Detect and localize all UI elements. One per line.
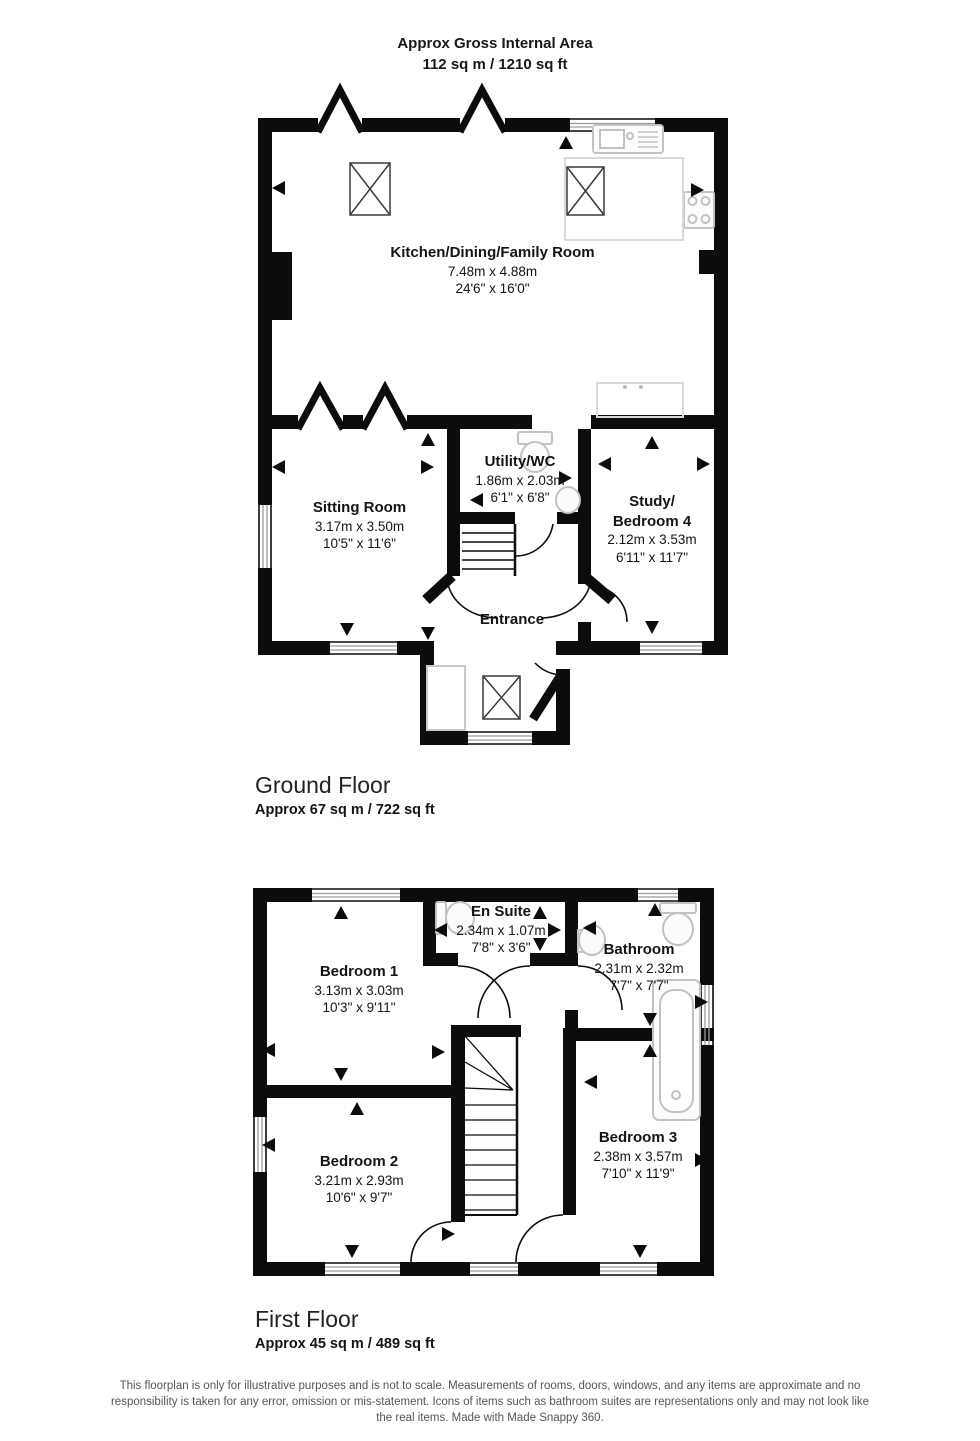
room-dim-metric: 3.17m x 3.50m [277,518,442,536]
stairs-icon [465,1032,517,1215]
stairs-icon [462,524,515,576]
room-dim-metric: 2.38m x 3.57m [568,1148,708,1166]
ground-floor-plan [258,90,728,745]
porch-mat [427,666,465,730]
ground-walls [258,118,728,745]
room-dim-imperial: 6'1" x 6'8" [452,489,588,507]
room-name: Bedroom 4 [582,512,722,532]
ground-floor-area: Approx 67 sq m / 722 sq ft [255,802,435,818]
ground-floor-heading: Ground Floor [255,772,391,799]
room-name: Bedroom 1 [279,962,439,982]
sitting-room-label: Sitting Room 3.17m x 3.50m 10'5" x 11'6" [277,498,442,553]
room-dim-metric: 2.34m x 1.07m [436,922,566,940]
room-dim-metric: 7.48m x 4.88m [355,263,630,281]
room-name: Utility/WC [452,452,588,472]
bedroom2-label: Bedroom 2 3.21m x 2.93m 10'6" x 9'7" [279,1152,439,1207]
title-line1: Approx Gross Internal Area [255,33,735,54]
ensuite-label: En Suite 2.34m x 1.07m 7'8" x 3'6" [436,902,566,957]
room-name: Bedroom 3 [568,1128,708,1148]
entrance-label: Entrance [452,610,572,630]
room-dim-imperial: 24'6" x 16'0" [355,280,630,298]
floorplan-page: Approx Gross Internal Area 112 sq m / 12… [0,0,980,1441]
disclaimer-text: This floorplan is only for illustrative … [110,1378,870,1426]
hob-icon [684,192,714,228]
floorplan-graphic [0,0,980,1441]
bathroom-label: Bathroom 2.31m x 2.32m 7'7" x 7'7" [569,940,709,995]
first-floor-area: Approx 45 sq m / 489 sq ft [255,1336,435,1352]
room-dim-metric: 3.21m x 2.93m [279,1172,439,1190]
bedroom1-label: Bedroom 1 3.13m x 3.03m 10'3" x 9'11" [279,962,439,1017]
kitchen-sink-icon [593,125,663,153]
room-dim-imperial: 6'11" x 11'7" [582,549,722,567]
title-line2: 112 sq m / 1210 sq ft [255,54,735,75]
room-dim-imperial: 10'5" x 11'6" [277,535,442,553]
room-dim-metric: 2.12m x 3.53m [582,531,722,549]
room-dim-metric: 3.13m x 3.03m [279,982,439,1000]
room-dim-imperial: 7'7" x 7'7" [569,977,709,995]
room-name: Sitting Room [277,498,442,518]
room-name: Kitchen/Dining/Family Room [355,243,630,263]
room-name: Entrance [452,610,572,630]
bedroom3-label: Bedroom 3 2.38m x 3.57m 7'10" x 11'9" [568,1128,708,1183]
room-name: Bedroom 2 [279,1152,439,1172]
study-bedroom4-label: Study/ Bedroom 4 2.12m x 3.53m 6'11" x 1… [582,492,722,566]
room-dim-imperial: 7'8" x 3'6" [436,939,566,957]
room-dim-imperial: 7'10" x 11'9" [568,1165,708,1183]
kitchen-label: Kitchen/Dining/Family Room 7.48m x 4.88m… [355,243,630,298]
room-dim-imperial: 10'3" x 9'11" [279,999,439,1017]
first-floor-heading: First Floor [255,1306,359,1333]
room-name: Bathroom [569,940,709,960]
room-dim-metric: 1.86m x 2.03m [452,472,588,490]
room-dim-metric: 2.31m x 2.32m [569,960,709,978]
room-dim-imperial: 10'6" x 9'7" [279,1189,439,1207]
toilet-icon [660,903,696,945]
room-name: Study/ [582,492,722,512]
bathtub-icon [653,980,700,1120]
utility-wc-label: Utility/WC 1.86m x 2.03m 6'1" x 6'8" [452,452,588,507]
room-name: En Suite [436,902,566,922]
page-title: Approx Gross Internal Area 112 sq m / 12… [255,33,735,75]
